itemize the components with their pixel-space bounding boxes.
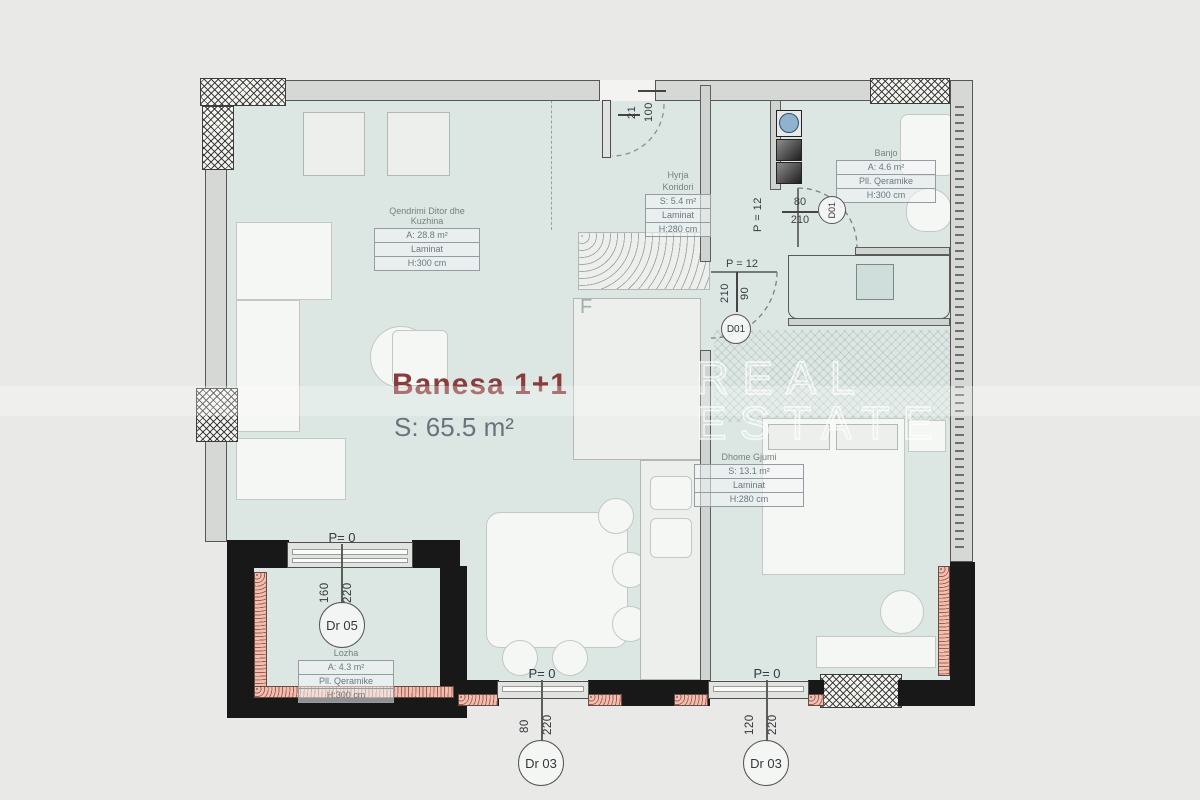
wall-balcony-stub-right (412, 540, 460, 568)
wardrobe-2 (387, 112, 450, 176)
terrace-door-b-glass (713, 686, 804, 692)
terrace-door-a-glass (502, 686, 584, 692)
corridor-height: H:280 cm (646, 222, 710, 236)
room-label-living: Qendrimi Ditor dhe Kuzhina A: 28.8 m² La… (374, 206, 480, 271)
wall-bedroom-top (788, 318, 950, 326)
kitchen-closet (578, 232, 710, 290)
wall-balcony-left (227, 566, 254, 718)
brick-sill-c (674, 694, 708, 706)
brick-sill-b (588, 694, 622, 706)
bath-cabinet-1 (776, 139, 802, 161)
apartment-title: Banesa 1+1 (392, 368, 672, 404)
bath-door-parapet: P = 12 (752, 192, 766, 238)
entry-dim-height: 21 (626, 96, 640, 128)
room-label-bath: Banjo A: 4.6 m² Pll. Qeramike H:300 cm (836, 148, 936, 203)
terrace-b-height: 220 (767, 708, 782, 742)
entry-door-leaf (602, 100, 611, 158)
terrace-a-tag-text: Dr 03 (525, 756, 557, 771)
corridor-name-line2: Koridori (645, 182, 711, 192)
dining-table (486, 512, 628, 648)
bath-cabinet-2 (776, 162, 802, 184)
hatch-bottom (820, 674, 902, 708)
desk-chair (880, 590, 924, 634)
washing-machine-drum (779, 113, 799, 133)
wardrobe-1 (303, 112, 365, 176)
balcony-door-tag-text: Dr 05 (326, 618, 358, 633)
sideboard (236, 438, 346, 500)
bath-material: Pll. Qeramike (837, 174, 935, 188)
bedroom-door-tag-text: D01 (727, 324, 745, 335)
bedroom-material: Laminat (695, 478, 803, 492)
apartment-area: S: 65.5 m² (394, 412, 634, 442)
terrace-b-tag: Dr 03 (743, 740, 789, 786)
wall-bath-bottom (855, 247, 950, 255)
living-area: A: 28.8 m² (375, 229, 479, 242)
loggia-material: Pll. Qeramike (299, 674, 393, 688)
bath-height: H:300 cm (837, 188, 935, 202)
watermark-line2: ESTATE (696, 401, 996, 446)
loggia-area: A: 4.3 m² (299, 661, 393, 674)
loggia-name: Lozha (298, 648, 394, 658)
desk (816, 636, 936, 668)
bedroom-door-parapet: P = 12 (718, 258, 766, 270)
terrace-a-width: 80 (519, 710, 534, 742)
living-material: Laminat (375, 242, 479, 256)
balcony-door-parapet: P= 0 (316, 530, 368, 544)
terrace-a-tag: Dr 03 (518, 740, 564, 786)
bath-door-height: 210 (784, 214, 816, 226)
open-plan-dashed-line (551, 85, 552, 230)
terrace-a-parapet: P= 0 (516, 666, 568, 680)
brick-sill-d (808, 694, 824, 706)
bath-door-width: 80 (784, 196, 816, 208)
sofa (236, 222, 332, 300)
cabinet-left (236, 300, 300, 432)
bedroom-door-tag: D01 (721, 314, 751, 344)
bath-door-tag-text: D01 (827, 202, 837, 219)
brick-balcony-left (254, 572, 267, 696)
bath-area: A: 4.6 m² (837, 161, 935, 174)
terrace-b-parapet: P= 0 (741, 666, 793, 680)
hatch-top-right (870, 78, 950, 104)
balcony-door-glass (292, 549, 408, 555)
bath-name: Banjo (836, 148, 936, 158)
living-spec-table: A: 28.8 m² Laminat H:300 cm (374, 228, 480, 271)
room-label-corridor: Hyrja Koridori S: 5.4 m² Laminat H:280 c… (645, 170, 711, 237)
bath-spec-table: A: 4.6 m² Pll. Qeramike H:300 cm (836, 160, 936, 203)
watermark-line1: REAL (696, 356, 996, 401)
room-label-loggia: Lozha A: 4.3 m² Pll. Qeramike H:300 cm (298, 648, 394, 703)
bedroom-door-fraction-line (736, 272, 738, 312)
wall-right-insulation (955, 106, 964, 554)
terrace-a-height: 220 (542, 708, 557, 742)
balcony-door-tag: Dr 05 (319, 602, 365, 648)
fridge-label: F (580, 296, 610, 322)
bath-door-tag: D01 (818, 196, 846, 224)
corridor-area: S: 5.4 m² (646, 195, 710, 208)
hatch-left-middle (196, 388, 238, 442)
living-room-name: Qendrimi Ditor dhe Kuzhina (374, 206, 480, 226)
corridor-name-line1: Hyrja (645, 170, 711, 180)
balcony-door-glass2 (292, 558, 408, 563)
brick-sill-a (458, 694, 498, 706)
terrace-b-width: 120 (744, 706, 759, 744)
wall-balcony-stub-left (227, 540, 289, 568)
wall-right-bottom (950, 562, 975, 706)
bedroom-door-height: 210 (719, 274, 733, 312)
bedroom-area: S: 13.1 m² (695, 465, 803, 478)
loggia-spec-table: A: 4.3 m² Pll. Qeramike H:300 cm (298, 660, 394, 703)
balcony-door-frame (287, 542, 413, 568)
bedroom-door-width: 90 (739, 276, 753, 310)
floor-plan-canvas: F Qendrimi Ditor dhe Kuzhina A: 28.8 m² … (0, 0, 1200, 800)
corridor-material: Laminat (646, 208, 710, 222)
kitchen-sink-2 (650, 518, 692, 558)
shower-tray (856, 264, 894, 300)
room-label-bedroom: Dhome Gjumi S: 13.1 m² Laminat H:280 cm (694, 452, 804, 507)
watermark: REAL ESTATE (696, 356, 996, 456)
entry-dim-width: 100 (643, 94, 657, 130)
hatch-top-left-horizontal (200, 78, 286, 106)
bedroom-spec-table: S: 13.1 m² Laminat H:280 cm (694, 464, 804, 507)
bedroom-height: H:280 cm (695, 492, 803, 506)
hatch-top-left-vertical (202, 106, 234, 170)
kitchen-sink-1 (650, 476, 692, 510)
entry-dim-tick1 (638, 90, 666, 92)
bath-door-fraction-line (782, 211, 818, 213)
terrace-b-tag-text: Dr 03 (750, 756, 782, 771)
corridor-spec-table: S: 5.4 m² Laminat H:280 cm (645, 194, 711, 237)
loggia-height: H:300 cm (299, 688, 393, 702)
living-height: H:300 cm (375, 256, 479, 270)
dining-chair-1 (598, 498, 634, 534)
brick-right (938, 566, 950, 676)
